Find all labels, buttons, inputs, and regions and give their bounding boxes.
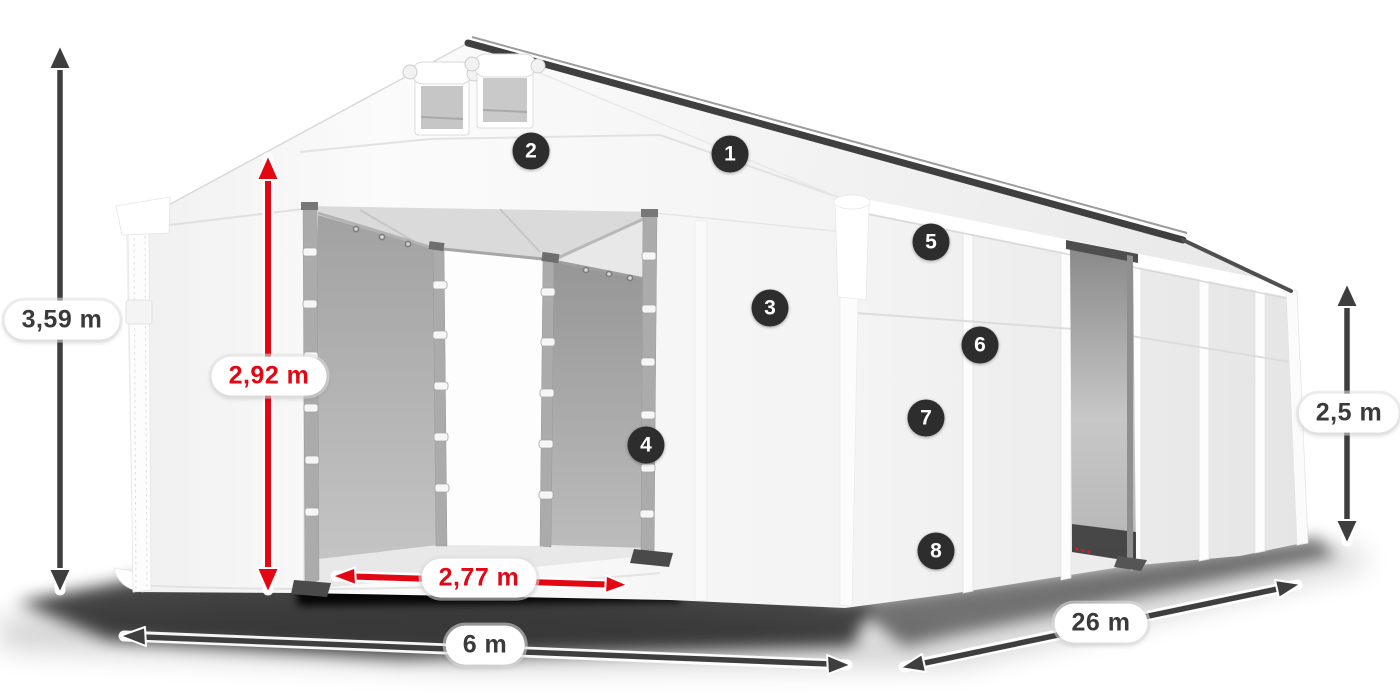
dimension-label-length: 26 m <box>1055 604 1148 643</box>
callout-badge-8[interactable]: 8 <box>918 533 955 570</box>
dimension-label-entrance-height: 2,92 m <box>212 357 327 396</box>
callout-badge-4[interactable]: 4 <box>628 427 665 464</box>
callout-badge-1[interactable]: 1 <box>712 136 749 173</box>
tent-dimension-diagram: 3,59 m 2,92 m 2,77 m 6 m 26 m 2,5 m 1 2 … <box>0 0 1400 700</box>
callout-badge-2[interactable]: 2 <box>513 133 550 170</box>
callout-badge-7[interactable]: 7 <box>908 400 945 437</box>
vent-window-left <box>403 62 481 135</box>
callout-badge-3[interactable]: 3 <box>752 290 789 327</box>
dimension-label-width: 6 m <box>446 626 525 665</box>
callout-badge-5[interactable]: 5 <box>913 224 950 261</box>
vent-window-right <box>465 54 545 128</box>
dimension-label-side-height: 2,5 m <box>1299 394 1399 433</box>
dimension-label-entrance-width: 2,77 m <box>422 559 537 598</box>
front-entrance-opening <box>303 206 655 590</box>
tent-illustration-canvas <box>0 0 1400 700</box>
callout-badge-6[interactable]: 6 <box>962 327 999 364</box>
dimension-label-total-height: 3,59 m <box>5 301 120 340</box>
